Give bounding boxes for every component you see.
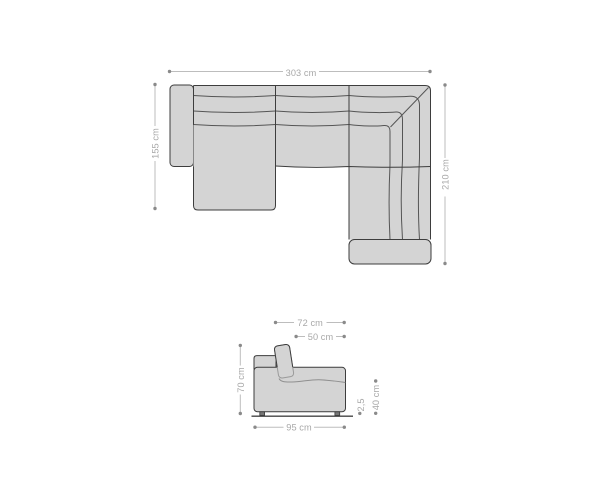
svg-text:303 cm: 303 cm — [286, 68, 317, 78]
svg-text:72 cm: 72 cm — [297, 318, 323, 328]
svg-text:2,5: 2,5 — [356, 398, 366, 411]
svg-text:70 cm: 70 cm — [236, 367, 246, 393]
svg-text:210 cm: 210 cm — [441, 159, 451, 190]
svg-text:50 cm: 50 cm — [308, 332, 334, 342]
svg-text:95 cm: 95 cm — [286, 423, 312, 433]
svg-text:155 cm: 155 cm — [151, 128, 161, 159]
svg-text:40 cm: 40 cm — [371, 385, 381, 411]
